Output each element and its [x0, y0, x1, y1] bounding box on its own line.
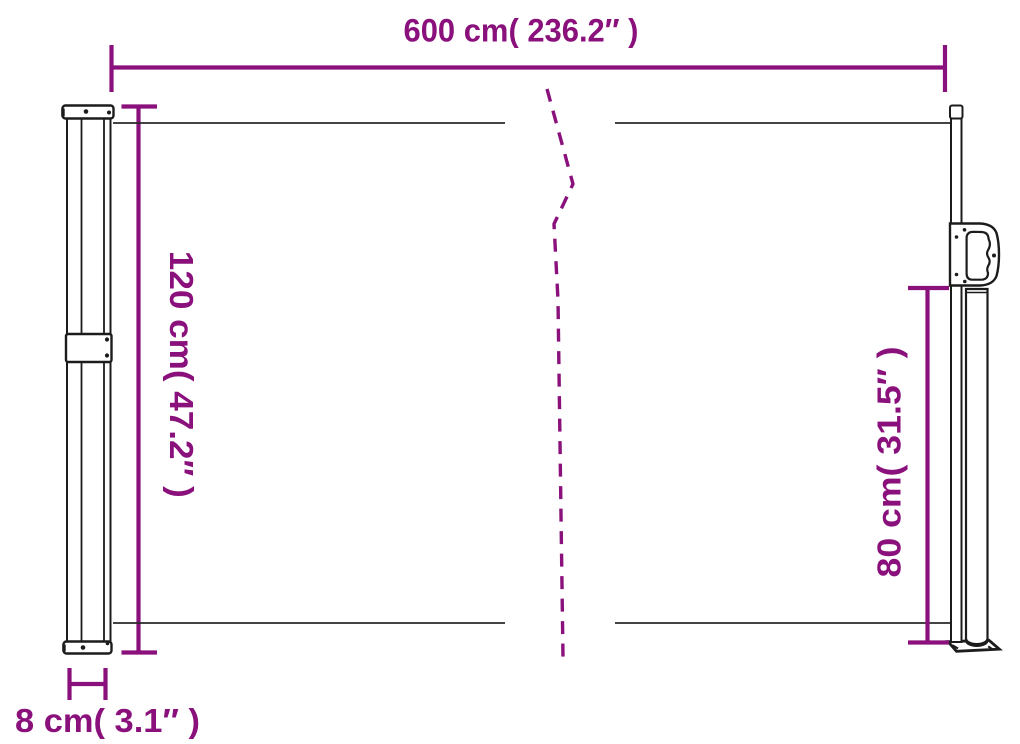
svg-text:8 cm( 3.1″ ): 8 cm( 3.1″ ) [15, 702, 200, 739]
svg-text:120 cm( 47.2″ ): 120 cm( 47.2″ ) [163, 251, 200, 498]
svg-text:600 cm( 236.2″ ): 600 cm( 236.2″ ) [404, 13, 639, 49]
svg-text:80 cm( 31.5″ ): 80 cm( 31.5″ ) [870, 347, 907, 578]
